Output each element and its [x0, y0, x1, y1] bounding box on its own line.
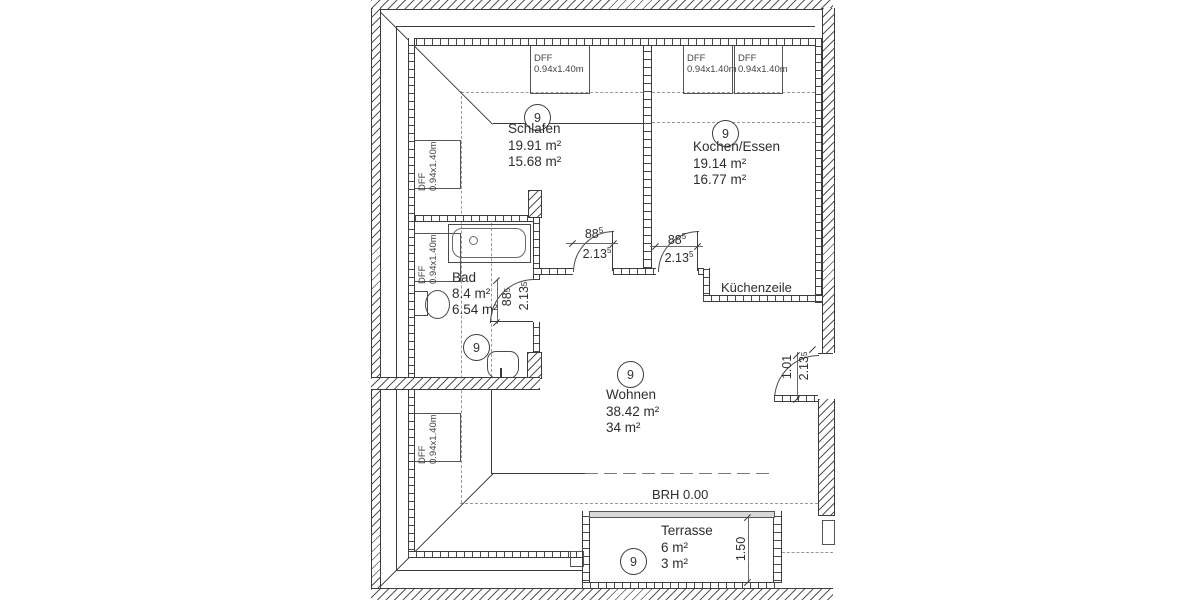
ref-circle-terrasse: 9 [620, 548, 647, 575]
room-block-terrasse: Terrasse 6 m² 3 m² [661, 523, 713, 573]
room-area-gross: 19.14 m² [693, 156, 780, 173]
room-area-net: 3 m² [661, 556, 713, 573]
room-area-net: 16.77 m² [693, 172, 780, 189]
room-name: Schlafen [508, 121, 561, 138]
room-labels: 9 Schlafen 19.91 m² 15.68 m² 9 Kochen/Es… [0, 0, 1200, 600]
room-name: Wohnen [606, 387, 659, 404]
brh-label: BRH 0.00 [652, 487, 708, 502]
room-name: Bad [452, 270, 498, 286]
ref-circle-bad: 9 [463, 334, 490, 361]
room-block-wohnen: Wohnen 38.42 m² 34 m² [606, 387, 659, 437]
room-area-gross: 6 m² [661, 540, 713, 557]
room-area-gross: 38.42 m² [606, 404, 659, 421]
floor-plan: DFF 0.94x1.40m DFF 0.94x1.40m DFF 0.94x1… [0, 0, 1200, 600]
room-name: Terrasse [661, 523, 713, 540]
kuechenzeile-label: Küchenzeile [721, 280, 792, 295]
room-area-gross: 19.91 m² [508, 138, 561, 155]
room-area-gross: 8.4 m² [452, 286, 498, 302]
room-area-net: 6.54 m² [452, 302, 498, 318]
room-name: Kochen/Essen [693, 139, 780, 156]
room-block-kochen: Kochen/Essen 19.14 m² 16.77 m² [693, 139, 780, 189]
room-area-net: 34 m² [606, 420, 659, 437]
room-block-bad: Bad 8.4 m² 6.54 m² [452, 270, 498, 318]
room-block-schlafen: Schlafen 19.91 m² 15.68 m² [508, 121, 561, 171]
ref-circle-wohnen: 9 [617, 361, 644, 388]
room-area-net: 15.68 m² [508, 154, 561, 171]
